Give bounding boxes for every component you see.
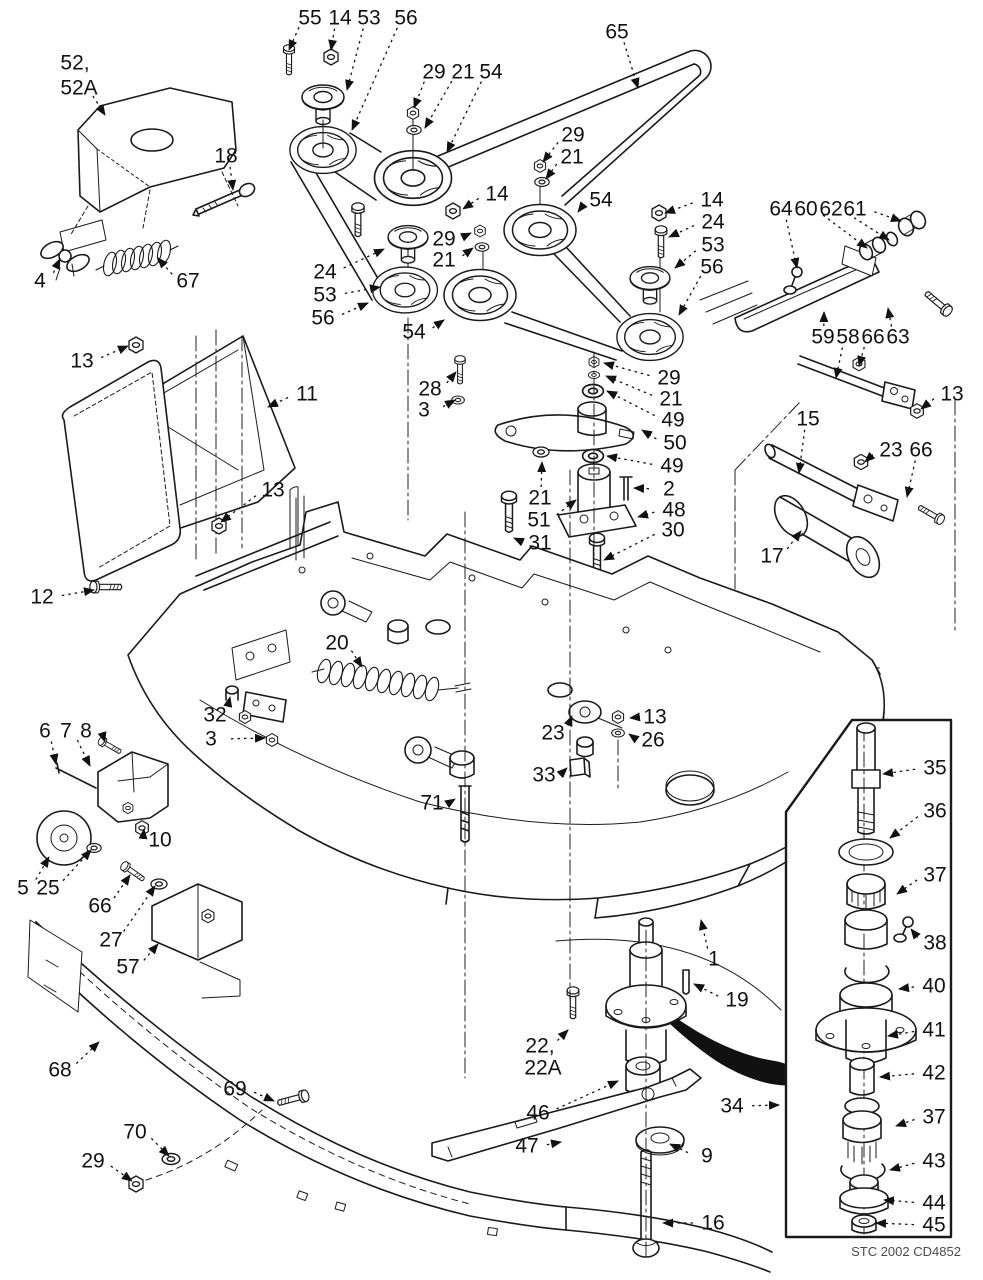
line-art: [450, 751, 474, 765]
bolt-12: [90, 581, 122, 593]
part-label-28: 28: [418, 378, 441, 401]
part-label-69: 69: [223, 1078, 246, 1101]
pulley-3: [373, 267, 438, 313]
nut-29a: [407, 107, 418, 120]
part-label-24: 24: [701, 211, 725, 234]
part-label-53: 53: [701, 234, 724, 257]
hub-53-mid: [388, 226, 428, 264]
bolt-28: [455, 356, 465, 384]
nut-66a: [853, 357, 865, 371]
leader-line: [425, 81, 452, 128]
nut-13d: [911, 404, 924, 418]
part-label-34: 34: [720, 1095, 744, 1118]
part-label-2: 2: [663, 478, 675, 501]
line-art: [60, 220, 106, 252]
leader-line: [111, 1166, 132, 1181]
leader-line: [101, 346, 128, 358]
pulley-5: [504, 205, 576, 256]
leader-line: [675, 251, 696, 268]
line-art: [28, 920, 82, 1012]
nut-10: [136, 821, 149, 835]
line-art: [566, 1207, 772, 1272]
line-art: [202, 909, 214, 923]
part-label-22A: 22A: [524, 1057, 561, 1080]
part-label-44: 44: [922, 1192, 946, 1215]
bolt-8: [97, 736, 123, 756]
leader-line: [543, 142, 558, 162]
part-label-21: 21: [432, 249, 455, 272]
leader-line: [634, 488, 649, 489]
leader-line: [546, 164, 557, 179]
line-art: [583, 385, 604, 398]
bolt-24l: [352, 203, 364, 237]
leader-line: [606, 376, 652, 395]
part-label-55: 55: [298, 7, 321, 30]
part-label-16: 16: [701, 1212, 724, 1235]
part-label-15: 15: [796, 408, 819, 431]
drawing-code: STC 2002 CD4852: [851, 1244, 961, 1259]
part-label-13: 13: [643, 706, 666, 729]
roller-group: [763, 443, 946, 583]
exploded-parts-diagram: PartsTree TM: [0, 0, 983, 1280]
part-label-52: 52,: [60, 52, 89, 75]
part-label-21: 21: [528, 487, 551, 510]
leader-line: [463, 198, 479, 209]
leader-line: [331, 29, 335, 50]
leader-line: [874, 212, 901, 221]
bolt-22: [567, 987, 579, 1019]
part-label-32: 32: [203, 704, 226, 727]
line-art: [630, 267, 670, 305]
line-art: [744, 268, 860, 319]
nut-14b: [446, 203, 460, 219]
line-art: [297, 1191, 308, 1201]
ring-36: [839, 839, 893, 865]
bolt-66b: [119, 860, 146, 883]
key-19: [683, 970, 689, 994]
part-label-66: 66: [861, 326, 884, 349]
line-art: [388, 620, 408, 632]
line-art: [798, 356, 897, 400]
leader-line: [151, 1138, 169, 1156]
part-label-54: 54: [402, 321, 426, 344]
leader-line: [694, 984, 718, 996]
part-label-70: 70: [123, 1121, 146, 1144]
line-art: [487, 1227, 497, 1235]
part-label-42: 42: [922, 1062, 945, 1085]
bolt-18: [193, 181, 257, 216]
part-label-53: 53: [357, 7, 380, 30]
washer-70: [162, 1154, 180, 1165]
line-art: [30, 922, 566, 1230]
leader-line: [888, 308, 891, 327]
washer-25: [87, 844, 101, 853]
part-label-26: 26: [641, 729, 664, 752]
spindle-hub-top: [302, 85, 344, 125]
pin-6: [56, 763, 96, 788]
part-label-6: 6: [39, 720, 51, 743]
part-label-3: 3: [418, 399, 430, 422]
part-label-65: 65: [605, 21, 628, 44]
bolt-24r: [655, 226, 667, 258]
line-art: [196, 189, 245, 214]
leader-line: [347, 29, 363, 90]
leader-line: [514, 538, 520, 541]
line-art: [583, 450, 604, 463]
part-label-52A: 52A: [60, 77, 97, 100]
part-label-24: 24: [313, 261, 337, 284]
part-label-29: 29: [657, 367, 680, 390]
nut-23r: [854, 454, 867, 469]
part-label-9: 9: [701, 1145, 713, 1168]
leader-line: [921, 399, 934, 409]
line-art: [152, 884, 242, 960]
part-label-29: 29: [81, 1150, 104, 1173]
leader-line: [76, 1042, 99, 1064]
line-art: [533, 447, 549, 457]
line-art: [266, 734, 277, 747]
part-label-23: 23: [541, 722, 564, 745]
leader-line: [669, 226, 694, 237]
part-label-36: 36: [923, 800, 946, 823]
part-label-18: 18: [214, 145, 237, 168]
leader-line: [547, 1142, 561, 1145]
line-art: [505, 312, 622, 360]
line-art: [62, 360, 180, 581]
line-art: [225, 1160, 238, 1171]
leader-line: [607, 456, 652, 464]
part-label-35: 35: [923, 757, 946, 780]
line-art: [845, 910, 887, 930]
nut-29d: [534, 160, 545, 173]
part-label-53: 53: [313, 284, 336, 307]
leader-line: [114, 875, 130, 898]
line-art: [59, 250, 71, 262]
part-label-25: 25: [36, 877, 59, 900]
line-art: [688, 50, 711, 78]
part-label-22: 22,: [525, 1035, 554, 1058]
line-art: [444, 270, 516, 321]
line-art: [373, 267, 438, 313]
line-art: [768, 490, 814, 542]
leader-line: [752, 1105, 779, 1106]
leader-line: [158, 258, 172, 274]
line-art: [504, 205, 576, 256]
part-label-7: 7: [60, 720, 72, 743]
bolt-31: [502, 491, 517, 532]
washer-21d: [535, 178, 549, 187]
idler-arm-assembly: [700, 209, 954, 418]
leader-line: [51, 741, 56, 764]
part-label-66: 66: [88, 895, 111, 918]
leader-line: [679, 276, 701, 315]
part-label-64: 64: [769, 198, 793, 221]
line-art: [226, 686, 238, 694]
part-label-37: 37: [923, 864, 946, 887]
leader-line: [230, 167, 233, 190]
leader-line: [447, 82, 481, 152]
line-art: [882, 382, 915, 409]
leader-line: [124, 886, 155, 931]
line-art: [784, 286, 796, 294]
part-label-3: 3: [205, 728, 217, 751]
leader-line: [638, 512, 654, 517]
line-art: [847, 874, 885, 894]
pin-2: [620, 477, 632, 500]
leader-line: [344, 249, 384, 268]
leader-line: [836, 348, 842, 378]
line-art: [850, 1058, 874, 1070]
part-label-31: 31: [528, 532, 551, 555]
nut-14a: [324, 49, 338, 65]
nut-13a: [129, 337, 143, 353]
leader-line: [786, 220, 797, 268]
line-art: [850, 1175, 878, 1189]
part-label-37: 37: [922, 1106, 945, 1129]
part-label-67: 67: [176, 270, 199, 293]
washer-21c: [475, 243, 489, 252]
washer-21a: [407, 126, 421, 135]
line-art: [617, 314, 683, 361]
hub-53-right: [630, 267, 670, 305]
part-label-51: 51: [527, 509, 550, 532]
leader-line: [642, 430, 656, 439]
part-label-33: 33: [532, 764, 555, 787]
part-label-43: 43: [922, 1150, 945, 1173]
leader-line: [907, 461, 915, 497]
part-label-30: 30: [661, 519, 684, 542]
line-art: [853, 485, 898, 521]
leader-line: [433, 320, 444, 328]
line-art: [903, 917, 913, 927]
part-label-13: 13: [940, 383, 963, 406]
part-label-29: 29: [561, 124, 584, 147]
part-label-5: 5: [17, 877, 29, 900]
part-label-13: 13: [70, 350, 93, 373]
bolt-63: [922, 288, 954, 317]
part-label-45: 45: [922, 1214, 945, 1237]
bolt-55: [283, 45, 294, 75]
line-art: [554, 247, 630, 322]
line-art: [840, 531, 886, 583]
idler-pivot-exploded: [495, 352, 636, 574]
part-label-58: 58: [836, 326, 859, 349]
belt-guard: [62, 330, 298, 581]
square-nut-33: [570, 758, 590, 777]
leader-line: [462, 248, 473, 256]
line-art: [577, 737, 593, 747]
line-art: [146, 1110, 262, 1180]
line-art: [335, 1202, 346, 1211]
bolt-69: [276, 1089, 310, 1109]
leader-line: [607, 391, 655, 416]
part-label-54: 54: [589, 189, 613, 212]
part-label-46: 46: [526, 1102, 549, 1125]
part-label-11: 11: [296, 383, 318, 406]
leader-line: [342, 303, 368, 315]
part-label-29: 29: [432, 228, 455, 251]
part-label-62: 62: [819, 198, 842, 221]
pulley-4: [444, 270, 516, 321]
washer-3: [452, 396, 465, 404]
line-art: [193, 209, 199, 216]
part-label-13: 13: [261, 479, 284, 502]
parts-diagram-page: PartsTree TM: [0, 0, 983, 1280]
part-label-4: 4: [34, 270, 46, 293]
leader-line: [799, 430, 805, 473]
line-art: [96, 246, 178, 270]
part-label-14: 14: [328, 7, 352, 30]
part-label-61: 61: [843, 198, 866, 221]
part-label-56: 56: [700, 256, 723, 279]
part-label-12: 12: [30, 586, 53, 609]
part-label-10: 10: [148, 829, 171, 852]
leader-line: [144, 944, 158, 960]
line-art: [852, 1215, 876, 1227]
nut-14c: [652, 205, 666, 221]
line-art: [843, 1111, 881, 1129]
spring: [96, 239, 178, 277]
line-art: [302, 85, 344, 125]
leader-line: [464, 233, 471, 237]
part-label-21: 21: [560, 146, 583, 169]
leader-line: [701, 920, 708, 949]
nut-13c: [612, 711, 623, 724]
line-art: [578, 402, 606, 416]
part-label-71: 71: [420, 792, 443, 815]
part-label-41: 41: [922, 1019, 945, 1042]
leader-line: [77, 740, 90, 766]
part-label-60: 60: [794, 198, 817, 221]
line-art: [839, 839, 893, 865]
part-label-66: 66: [909, 439, 932, 462]
leader-line: [578, 205, 583, 212]
part-label-14: 14: [485, 183, 509, 206]
part-label-59: 59: [811, 326, 834, 349]
leader-line: [624, 42, 638, 88]
leader-line: [62, 590, 94, 596]
nut-29b: [129, 1176, 143, 1192]
line-art: [840, 1188, 888, 1208]
pulley-6: [617, 314, 683, 361]
part-label-20: 20: [325, 632, 348, 655]
part-label-49: 49: [661, 409, 684, 432]
part-label-49: 49: [660, 455, 683, 478]
leader-line: [541, 462, 542, 487]
line-art: [626, 1057, 660, 1075]
leader-line: [414, 82, 424, 108]
leader-line: [604, 363, 650, 376]
part-label-27: 27: [99, 929, 122, 952]
part-label-38: 38: [923, 932, 946, 955]
part-label-54: 54: [479, 61, 503, 84]
nut-29c: [475, 225, 486, 237]
part-label-21: 21: [659, 388, 682, 411]
part-label-23: 23: [879, 439, 902, 462]
leader-line: [557, 1030, 568, 1041]
part-label-29: 29: [422, 61, 445, 84]
leader-line: [665, 203, 693, 213]
line-art: [131, 129, 173, 151]
part-label-63: 63: [886, 326, 909, 349]
line-art: [123, 802, 133, 813]
blade-spindle-assembly: [432, 918, 796, 1258]
line-art: [885, 231, 900, 248]
line-art: [636, 1127, 684, 1153]
line-art: [857, 723, 875, 733]
part-label-40: 40: [922, 975, 945, 998]
part-label-57: 57: [116, 956, 139, 979]
leader-line: [447, 372, 456, 383]
part-label-1: 1: [708, 948, 720, 971]
line-art: [388, 226, 428, 264]
line-art: [763, 443, 777, 459]
part-label-56: 56: [311, 307, 334, 330]
line-art: [639, 918, 653, 926]
part-label-56: 56: [394, 7, 417, 30]
line-art: [792, 267, 802, 277]
line-art: [894, 934, 906, 942]
part-label-50: 50: [663, 432, 686, 455]
part-label-47: 47: [515, 1135, 538, 1158]
part-label-14: 14: [700, 189, 724, 212]
wing-nut: [38, 238, 92, 280]
washer-26: [612, 729, 625, 737]
line-art: [840, 983, 892, 1007]
belt-cover: [60, 88, 238, 252]
bolt-66r: [916, 502, 946, 525]
part-label-21: 21: [451, 61, 474, 84]
part-label-17: 17: [760, 545, 783, 568]
part-label-8: 8: [80, 720, 92, 743]
part-label-68: 68: [48, 1059, 71, 1082]
part-label-19: 19: [725, 989, 748, 1012]
line-art: [239, 711, 250, 724]
